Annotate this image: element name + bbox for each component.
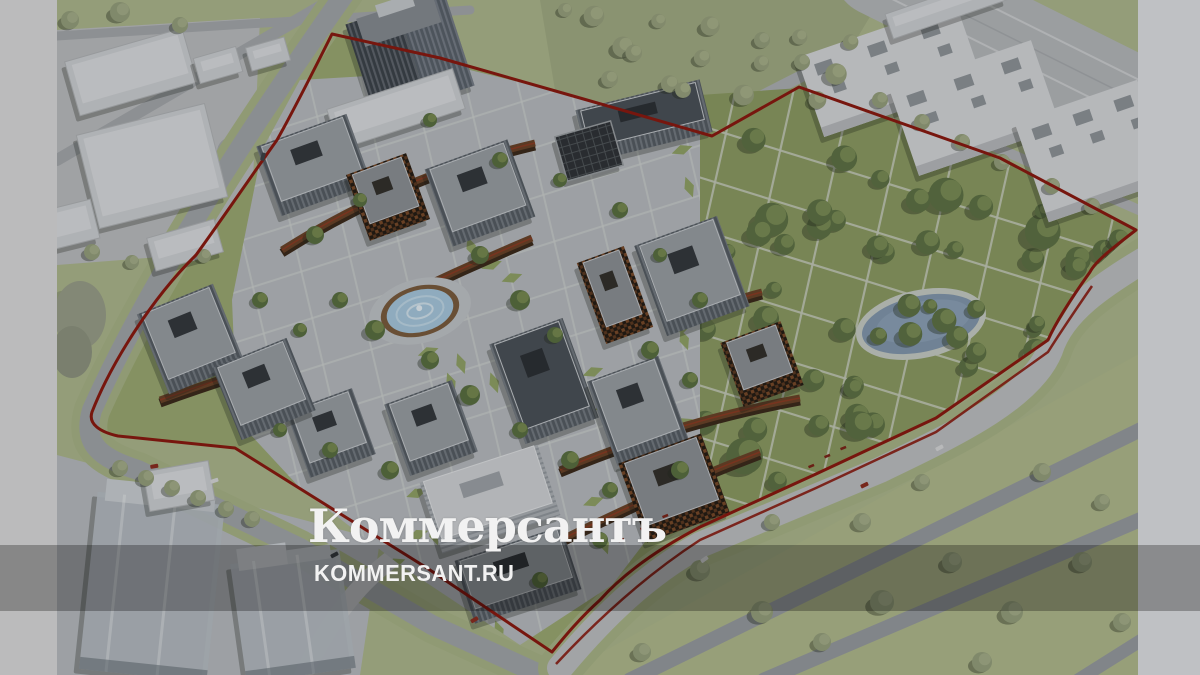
masterplan-aerial-render	[0, 0, 1200, 675]
watermark-band-overlay	[0, 545, 1200, 611]
watermark-brand-logo: Коммерсантъ	[308, 499, 666, 553]
news-hero-image: Коммерсантъ KOMMERSANT.RU	[0, 0, 1200, 675]
watermark-site-url: KOMMERSANT.RU	[314, 560, 514, 587]
